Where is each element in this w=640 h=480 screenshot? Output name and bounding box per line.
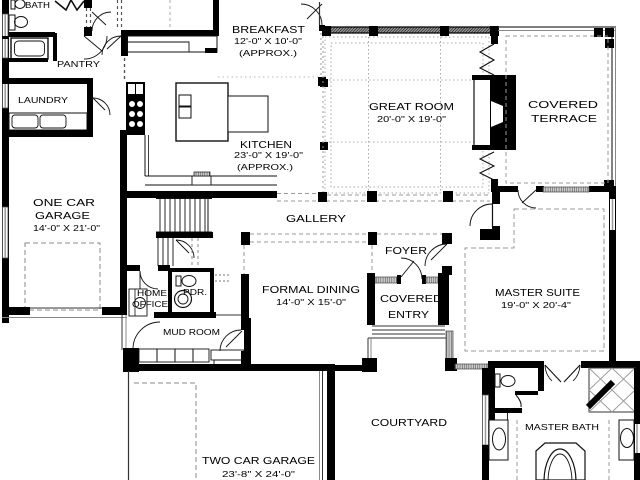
svg-text:MASTER SUITE: MASTER SUITE <box>495 288 580 299</box>
svg-text:BATH: BATH <box>25 0 50 10</box>
svg-text:HOME: HOME <box>137 288 167 298</box>
svg-text:GREAT ROOM: GREAT ROOM <box>369 102 454 113</box>
svg-text:MUD ROOM: MUD ROOM <box>163 327 220 337</box>
svg-text:ENTRY: ENTRY <box>388 310 429 321</box>
svg-text:COVERED: COVERED <box>380 294 442 305</box>
svg-text:COVERED: COVERED <box>528 100 598 111</box>
svg-text:LAUNDRY: LAUNDRY <box>18 95 68 105</box>
svg-text:23'-8" X 24'-0": 23'-8" X 24'-0" <box>222 469 295 479</box>
svg-text:12'-0" X 10'-0": 12'-0" X 10'-0" <box>234 36 302 46</box>
svg-text:GALLERY: GALLERY <box>286 214 346 225</box>
svg-text:20'-0" X 19'-0": 20'-0" X 19'-0" <box>377 114 446 124</box>
svg-text:TWO CAR GARAGE: TWO CAR GARAGE <box>202 456 315 467</box>
svg-text:ONE CAR: ONE CAR <box>33 198 95 209</box>
svg-text:(APPROX.): (APPROX.) <box>239 48 297 58</box>
svg-text:14'-0" X 21'-0": 14'-0" X 21'-0" <box>33 223 100 233</box>
svg-text:BREAKFAST: BREAKFAST <box>232 25 305 36</box>
svg-text:PANTRY: PANTRY <box>57 59 100 69</box>
svg-text:FORMAL DINING: FORMAL DINING <box>262 285 360 296</box>
svg-text:TERRACE: TERRACE <box>531 114 597 125</box>
svg-text:MASTER BATH: MASTER BATH <box>525 422 599 432</box>
svg-text:19'-0" X 20'-4": 19'-0" X 20'-4" <box>501 300 571 310</box>
svg-text:14'-0" X 15'-0": 14'-0" X 15'-0" <box>276 297 346 307</box>
svg-text:23'-0" X 19'-0": 23'-0" X 19'-0" <box>234 150 303 160</box>
svg-text:COURTYARD: COURTYARD <box>371 418 447 429</box>
svg-text:GARAGE: GARAGE <box>35 211 90 222</box>
svg-text:(APPROX.): (APPROX.) <box>237 162 293 172</box>
svg-text:FOYER: FOYER <box>385 246 427 257</box>
